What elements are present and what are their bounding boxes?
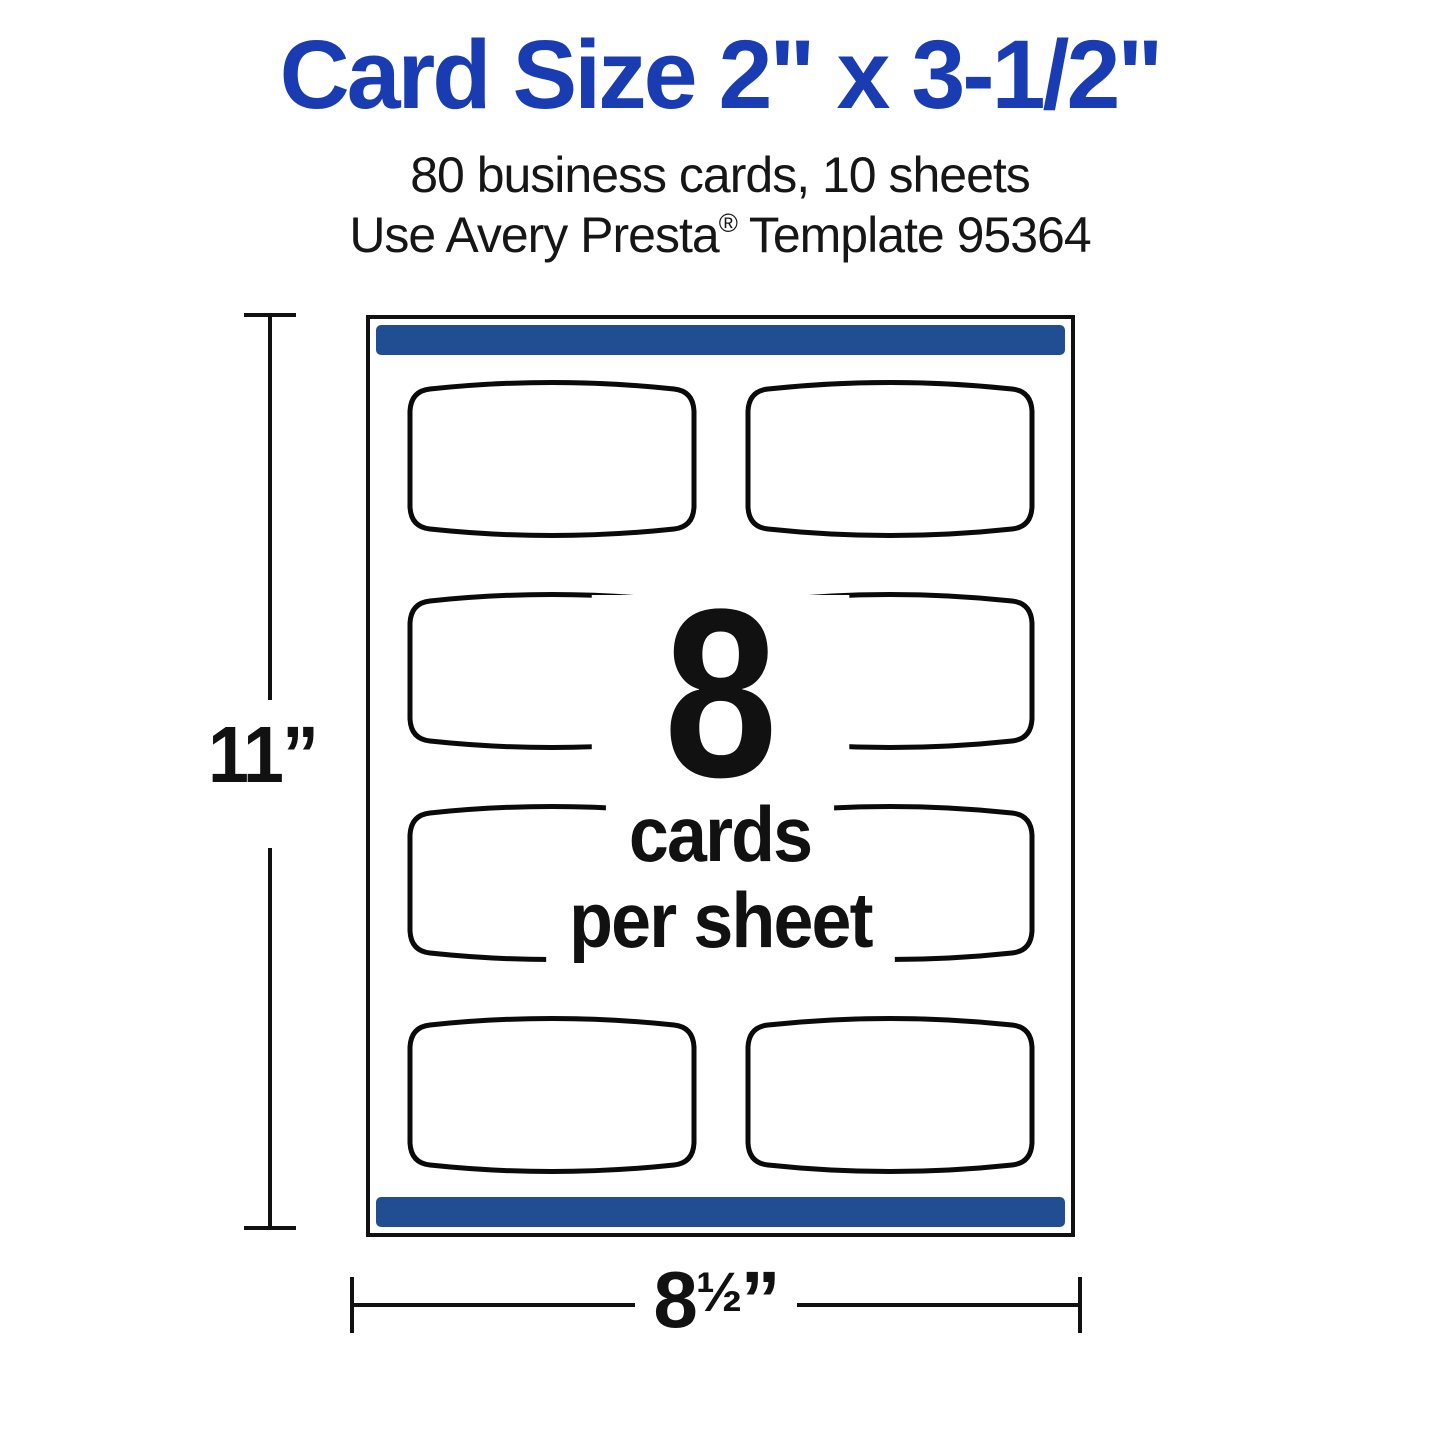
height-dimension-line-lower — [268, 848, 272, 1230]
callout-line-cards: cards — [606, 791, 834, 877]
sheet-diagram: 8 cards per sheet — [366, 315, 1075, 1237]
height-dimension-line-upper — [268, 313, 272, 700]
subtitle-template-suffix: Template 95364 — [737, 207, 1091, 263]
height-dimension-bottom-cap — [244, 1226, 296, 1230]
width-dimension-right-cap — [1078, 1277, 1082, 1333]
page-title: Card Size 2" x 3-1/2" — [0, 26, 1440, 123]
width-dimension-line-right — [797, 1303, 1082, 1307]
business-card-outline — [402, 373, 702, 545]
callout-line-per-sheet: per sheet — [546, 877, 895, 963]
cards-per-sheet-callout: 8 cards per sheet — [370, 595, 1071, 963]
height-dimension-label: 11” — [173, 712, 352, 798]
width-label-unit: ” — [741, 1255, 779, 1344]
bottom-blue-bar — [376, 1197, 1065, 1227]
registered-trademark-symbol: ® — [719, 208, 737, 238]
business-card-outline — [402, 1009, 702, 1181]
width-label-number: 8 — [653, 1255, 696, 1344]
top-blue-bar — [376, 325, 1065, 355]
width-label-fraction: ½ — [696, 1260, 741, 1323]
subtitle-template: Use Avery Presta® Template 95364 — [0, 210, 1440, 260]
cards-count-number: 8 — [592, 595, 850, 791]
product-diagram: Card Size 2" x 3-1/2" 80 business cards,… — [0, 0, 1440, 1440]
business-card-outline — [740, 1009, 1040, 1181]
business-card-outline — [740, 373, 1040, 545]
subtitle-template-prefix: Use Avery Presta — [349, 207, 718, 263]
subtitle-quantity: 80 business cards, 10 sheets — [0, 150, 1440, 200]
